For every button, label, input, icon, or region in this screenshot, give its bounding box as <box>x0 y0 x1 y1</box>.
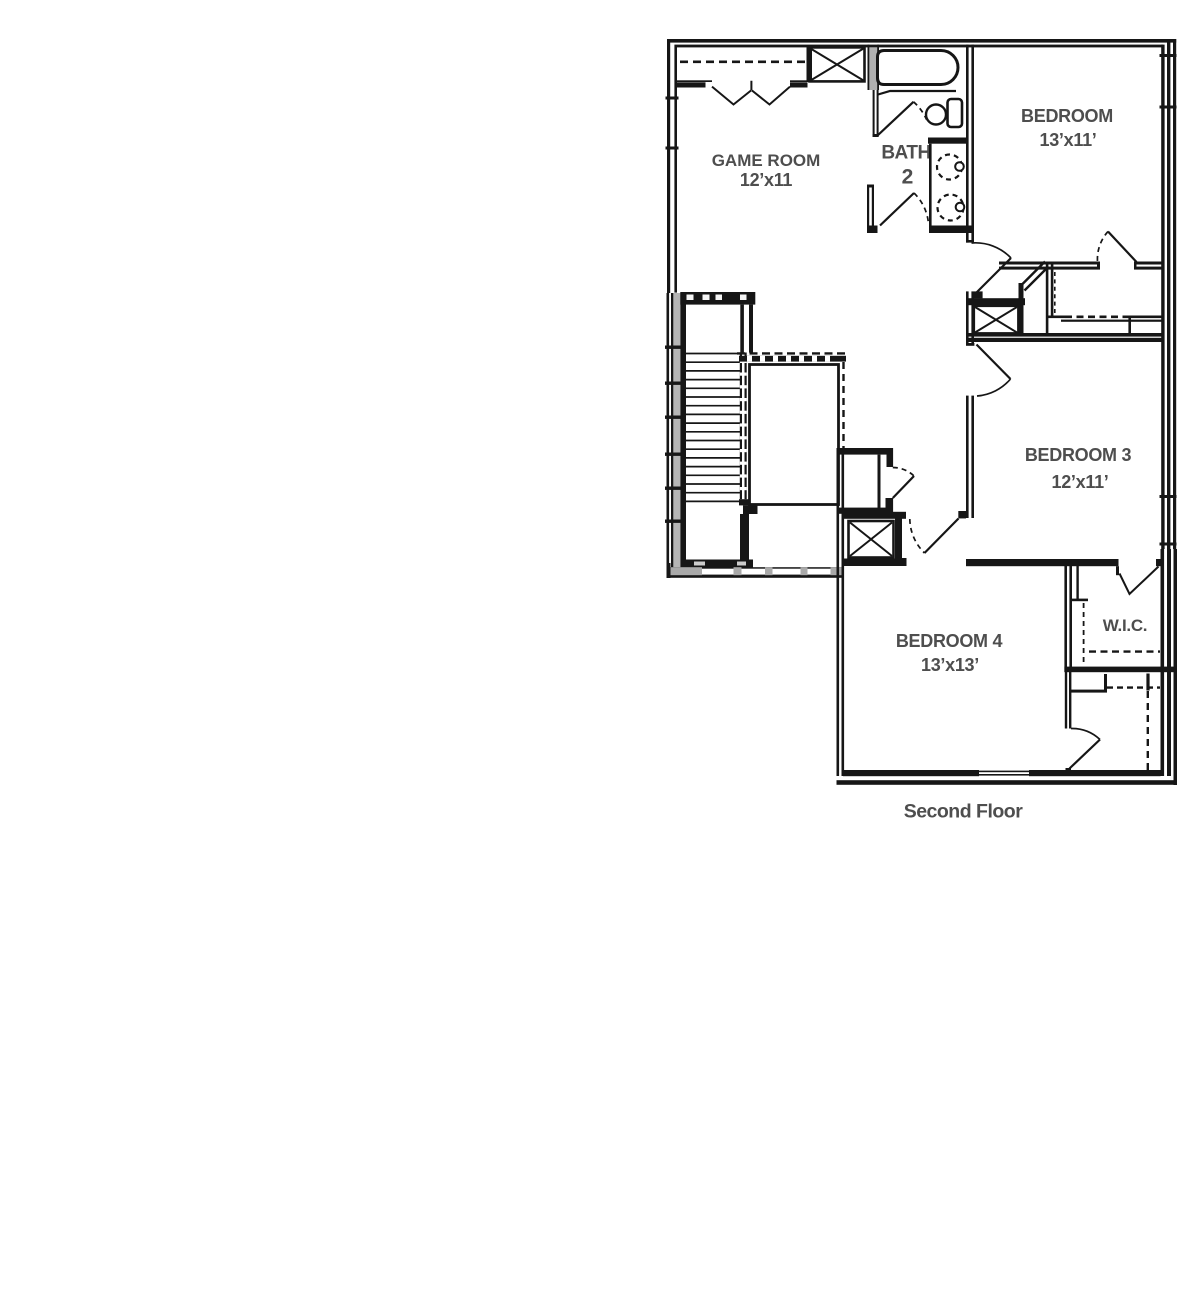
svg-text:13’x13’: 13’x13’ <box>921 655 979 675</box>
svg-text:GAME ROOM: GAME ROOM <box>712 151 821 170</box>
svg-text:Second Floor: Second Floor <box>904 801 1024 823</box>
svg-text:2: 2 <box>902 166 914 189</box>
svg-text:BEDROOM 4: BEDROOM 4 <box>896 631 1003 651</box>
svg-text:13’x11’: 13’x11’ <box>1040 130 1097 150</box>
svg-text:BEDROOM: BEDROOM <box>1021 106 1113 126</box>
svg-text:BATH: BATH <box>881 143 930 164</box>
svg-text:12’x11’: 12’x11’ <box>1052 472 1109 492</box>
svg-text:W.I.C.: W.I.C. <box>1103 616 1147 635</box>
svg-text:12’x11: 12’x11 <box>740 170 793 190</box>
svg-text:BEDROOM 3: BEDROOM 3 <box>1025 445 1132 465</box>
